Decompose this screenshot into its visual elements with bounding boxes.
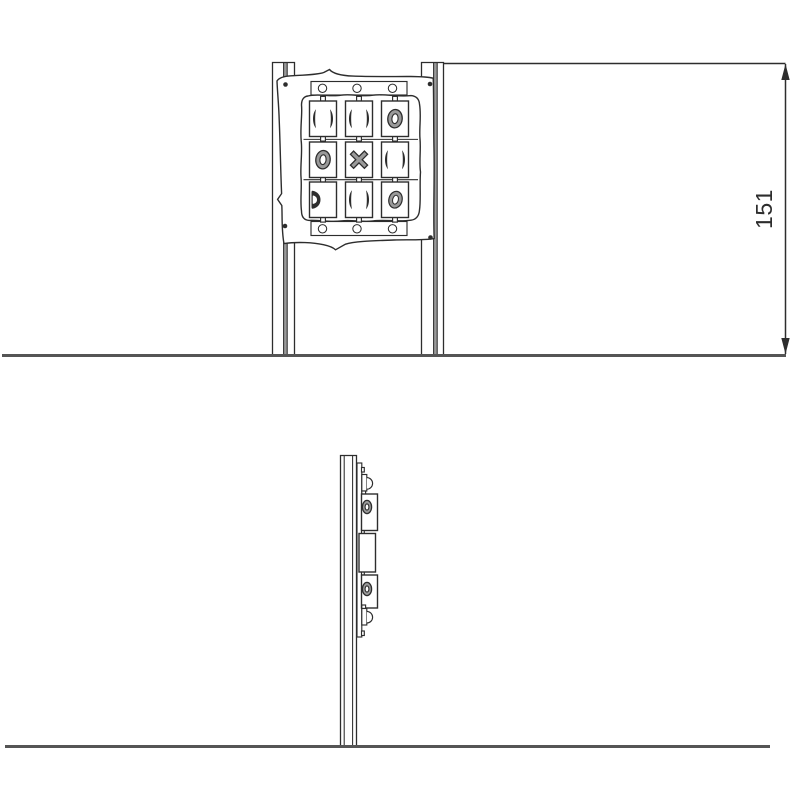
front-view [2, 63, 786, 356]
grid-cell-r0c1 [346, 101, 373, 137]
grid-cell-r2c2 [382, 182, 409, 218]
bracket-foot [362, 605, 366, 608]
drawing-canvas: 151 [0, 0, 800, 800]
bracket-knob [367, 611, 373, 623]
tictactoe-grid [310, 96, 409, 222]
technical-drawing: 151 [0, 0, 800, 800]
arrowhead-down-icon [781, 338, 789, 354]
screw-bottom-right [428, 235, 433, 240]
grid-cell-r2c1 [346, 182, 373, 218]
pin-stub [362, 468, 365, 473]
bracket-body [362, 475, 367, 492]
side-block-2 [359, 534, 376, 573]
dimension-151: 151 [444, 64, 790, 355]
o-marker-side-hole [365, 586, 369, 592]
side-view [5, 456, 770, 747]
o-marker-side-hole [365, 504, 369, 510]
arrowhead-up-icon [781, 64, 789, 80]
side-block-3 [362, 575, 378, 608]
pin-stub [362, 631, 365, 636]
dimension-value: 151 [751, 189, 777, 229]
side-post [341, 456, 357, 747]
top-mounting-bar [311, 82, 407, 96]
grid-cell-r1c2 [382, 142, 409, 178]
screw-top-right [428, 82, 433, 87]
grid-cell-r1c0 [310, 142, 337, 178]
bottom-mounting-bar [311, 222, 407, 236]
block-profile [359, 534, 376, 573]
side-block-1 [362, 494, 378, 531]
screw-bottom-left [283, 224, 288, 229]
bracket-knob [367, 478, 373, 490]
grid-cell-r2c0 [310, 182, 337, 218]
grid-cell-r0c2 [382, 101, 409, 137]
bracket-body [362, 609, 367, 626]
side-top-bracket [362, 475, 373, 495]
screw-top-left [283, 82, 288, 87]
grid-cell-r1c1 [346, 142, 373, 178]
side-post-outline [341, 456, 357, 747]
grid-cell-r0c0 [310, 101, 337, 137]
